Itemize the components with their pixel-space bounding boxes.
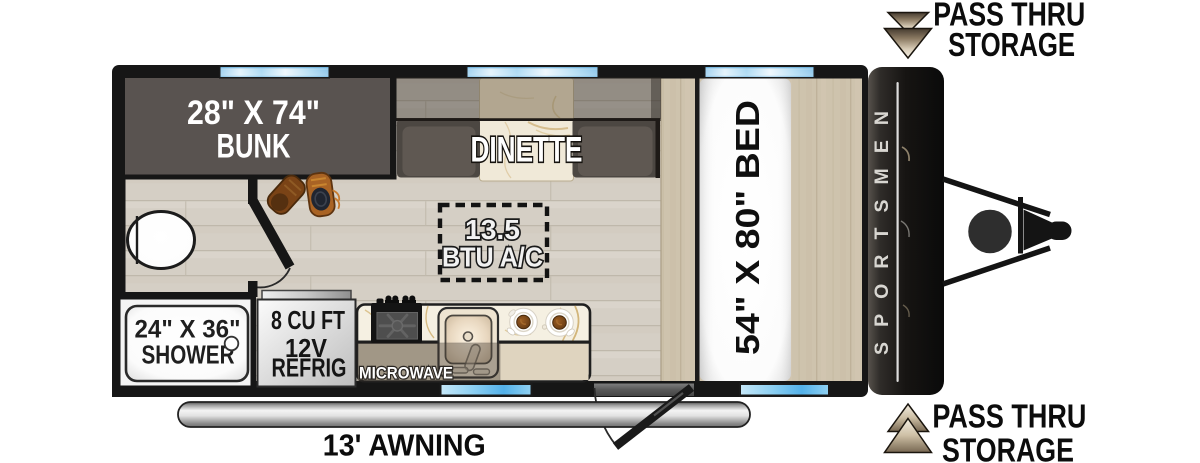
svg-text:13' AWNING: 13' AWNING	[323, 429, 486, 463]
svg-text:SPORTSMEN: SPORTSMEN	[871, 111, 893, 355]
svg-text:BTU A/C: BTU A/C	[442, 242, 543, 273]
svg-text:STORAGE: STORAGE	[942, 433, 1074, 463]
svg-text:54" X 80" BED: 54" X 80" BED	[729, 100, 766, 355]
svg-text:MICROWAVE: MICROWAVE	[359, 364, 453, 383]
svg-text:STORAGE: STORAGE	[948, 27, 1075, 64]
svg-text:28" X 74": 28" X 74"	[187, 94, 320, 132]
svg-text:24" X 36": 24" X 36"	[135, 316, 241, 344]
svg-text:DINETTE: DINETTE	[471, 130, 583, 170]
svg-text:PASS THRU: PASS THRU	[932, 399, 1086, 436]
svg-text:REFRIG: REFRIG	[272, 355, 347, 383]
svg-text:SHOWER: SHOWER	[142, 342, 235, 370]
svg-text:13.5: 13.5	[465, 214, 520, 245]
svg-text:8 CU FT: 8 CU FT	[271, 307, 345, 335]
svg-text:BUNK: BUNK	[217, 128, 291, 166]
